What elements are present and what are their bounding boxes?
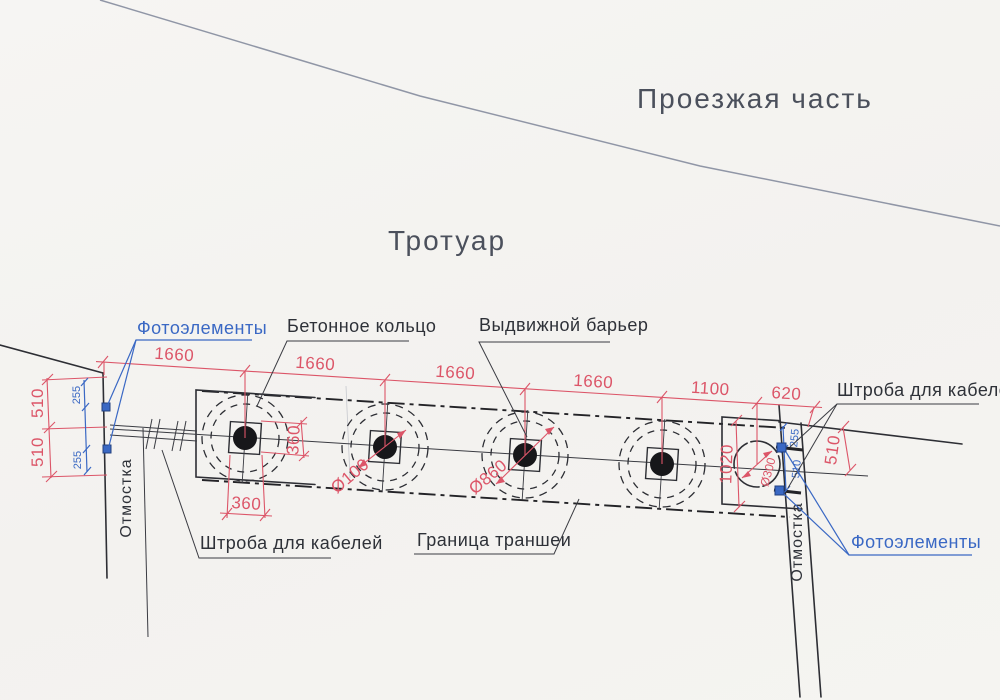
callout-photocells-right: Фотоэлементы [784,452,981,555]
callout-cable-chase-right: Штроба для кабелей [788,380,1000,488]
site-plan-drawing: Проезжая часть Тротуар Отмостка [0,0,1000,700]
dim-510-left-2: 510 [28,437,47,467]
callout-concrete-ring: Бетонное кольцо [257,316,436,406]
trench-boundary-bottom [202,480,790,517]
photocell-right-top [777,443,786,452]
photocell-left-bottom [103,445,111,453]
fence-edge-right [779,422,962,444]
dimension-chain: 1660 1660 1660 1660 1100 620 [96,344,822,464]
dim-620: 620 [771,383,802,404]
curb-edge-left [0,345,103,373]
dim-255-left-2: 255 [72,451,84,469]
sidewalk-label: Тротуар [388,225,506,256]
dim-510-right: 510 [821,434,844,466]
photocell-left-top [102,403,110,411]
square-dimensions: 360 360 [220,417,309,521]
concrete-ring-label: Бетонное кольцо [287,316,436,336]
blind-area-right-label: Отмостка [789,502,806,581]
trench-boundary-label: Граница траншеи [417,530,571,550]
callout-retractable-barrier: Выдвижной барьер [479,315,648,437]
photocell-right-bottom [775,486,784,495]
cable-well-dia-arrowhead-1 [742,471,751,478]
cable-chase-left-lines [110,419,197,451]
dim-1660-1: 1660 [154,344,195,365]
dim-1020: 1020 [716,444,736,484]
cable-chase-right-label: Штроба для кабелей [837,380,1000,400]
dim-360-horizontal: 360 [231,493,262,514]
left-dimensions: 510 510 255 255 [28,374,111,482]
callout-trench-boundary: Граница траншеи [414,499,579,554]
blind-area-left-outer-line [143,428,148,637]
dim-1660-4: 1660 [573,371,614,392]
dim-360-vertical: 360 [283,425,304,456]
photocells-left-label: Фотоэлементы [137,318,267,338]
dim-255-left-1: 255 [71,386,83,404]
retractable-barrier-label: Выдвижной барьер [479,315,648,335]
dim-1660-3: 1660 [435,362,476,383]
photocells-right-label: Фотоэлементы [851,532,981,552]
dim-1660-2: 1660 [295,353,336,374]
blind-area-left-label: Отмостка [118,458,135,537]
scanned-site-plan: Проезжая часть Тротуар Отмостка [0,0,1000,700]
dim-1100: 1100 [691,378,731,399]
cable-chase-left-label: Штроба для кабелей [200,533,383,553]
dim-510-left-1: 510 [28,388,47,418]
roadway-label: Проезжая часть [637,83,873,114]
